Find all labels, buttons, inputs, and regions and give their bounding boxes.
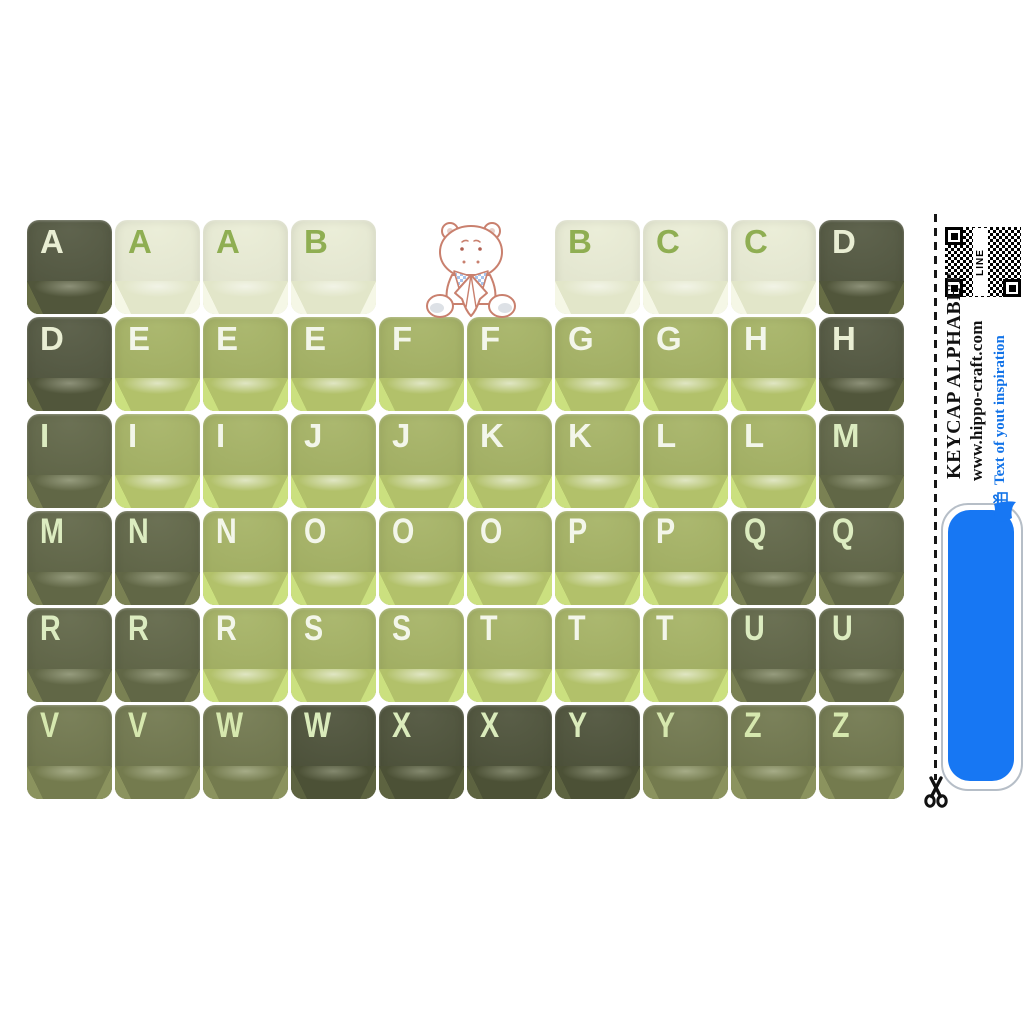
hippo-eye-right — [478, 247, 482, 251]
keycap-front-face — [731, 378, 816, 411]
keycap-letter: T — [568, 609, 586, 649]
qr-finder — [945, 227, 963, 245]
keycap-front-face — [203, 766, 288, 799]
keycap-i: I — [115, 414, 200, 508]
keycap-front-face — [819, 475, 904, 508]
keycap-letter: W — [216, 706, 243, 746]
keycap-front-face — [555, 766, 640, 799]
keycap-letter: G — [656, 320, 682, 358]
website-url: www.hippo-craft.com — [967, 320, 987, 481]
keycap-front-face — [819, 281, 904, 314]
keycap-letter: J — [304, 417, 322, 455]
speech-bubble — [948, 510, 1014, 781]
keycap-letter: W — [304, 706, 331, 746]
hippo-mascot — [424, 219, 518, 321]
keycap-letter: V — [40, 706, 59, 746]
sheet-title: KEYCAP ALPHABET — [943, 273, 966, 479]
keycap-x: X — [467, 705, 552, 799]
keycap-i: I — [203, 414, 288, 508]
keycap-p: P — [555, 511, 640, 605]
keycap-h: H — [731, 317, 816, 411]
keycap-x: X — [379, 705, 464, 799]
keycap-v: V — [115, 705, 200, 799]
keycap-letter: Y — [656, 706, 675, 746]
keycap-front-face — [115, 281, 200, 314]
keycap-front-face — [819, 378, 904, 411]
keycap-z: Z — [731, 705, 816, 799]
keycap-front-face — [291, 475, 376, 508]
keycap-front-face — [555, 669, 640, 702]
keycap-letter: S — [392, 609, 411, 649]
keycap-letter: A — [128, 223, 152, 261]
speech-bubble-tail — [992, 498, 1022, 526]
keycap-front-face — [115, 669, 200, 702]
keycap-q: Q — [819, 511, 904, 605]
keycap-front-face — [467, 572, 552, 605]
inspiration-note: Text of yout inspiration — [991, 335, 1009, 509]
keycap-d: D — [819, 220, 904, 314]
keycap-t: T — [555, 608, 640, 702]
keycap-letter: E — [128, 320, 150, 358]
keycap-front-face — [467, 475, 552, 508]
keycap-letter: I — [128, 417, 137, 455]
qr-finder — [1003, 279, 1021, 297]
keycap-e: E — [203, 317, 288, 411]
keycap-letter: U — [744, 609, 765, 649]
keycap-d: D — [27, 317, 112, 411]
keycap-front-face — [731, 281, 816, 314]
keycap-r: R — [203, 608, 288, 702]
keycap-letter: E — [304, 320, 326, 358]
keycap-front-face — [643, 378, 728, 411]
keycap-letter: B — [304, 223, 328, 261]
keycap-front-face — [291, 669, 376, 702]
keycap-front-face — [467, 378, 552, 411]
keycap-letter: T — [480, 609, 498, 649]
hippo-nostril-right — [477, 261, 480, 264]
keycap-front-face — [643, 766, 728, 799]
hippo-head — [440, 226, 502, 278]
keycap-q: Q — [731, 511, 816, 605]
keycap-front-face — [203, 378, 288, 411]
keycap-letter: A — [40, 223, 64, 261]
keycap-f: F — [379, 317, 464, 411]
keycap-y: Y — [555, 705, 640, 799]
keycap-v: V — [27, 705, 112, 799]
keycap-c: C — [643, 220, 728, 314]
keycap-j: J — [291, 414, 376, 508]
keycap-front-face — [731, 572, 816, 605]
keycap-front-face — [643, 572, 728, 605]
keycap-front-face — [379, 669, 464, 702]
keycap-letter: B — [568, 223, 592, 261]
keycap-p: P — [643, 511, 728, 605]
keycap-letter: P — [568, 512, 587, 552]
keycap-letter: I — [40, 417, 49, 455]
keycap-front-face — [467, 766, 552, 799]
keycap-front-face — [731, 766, 816, 799]
keycap-b: B — [555, 220, 640, 314]
keycap-t: T — [467, 608, 552, 702]
keycap-front-face — [379, 378, 464, 411]
keycap-front-face — [819, 572, 904, 605]
keycap-n: N — [115, 511, 200, 605]
keycap-letter: T — [656, 609, 674, 649]
keycap-front-face — [731, 669, 816, 702]
keycap-letter: Y — [568, 706, 587, 746]
keycap-e: E — [291, 317, 376, 411]
keycap-letter: H — [744, 320, 768, 358]
keycap-front-face — [731, 475, 816, 508]
keycap-a: A — [115, 220, 200, 314]
keycap-front-face — [467, 669, 552, 702]
keycap-a: A — [203, 220, 288, 314]
keycap-a: A — [27, 220, 112, 314]
keycap-front-face — [203, 572, 288, 605]
keycap-letter: M — [832, 417, 860, 455]
keycap-letter: Q — [744, 512, 766, 552]
keycap-s: S — [291, 608, 376, 702]
keycap-letter: U — [832, 609, 853, 649]
keycap-w: W — [203, 705, 288, 799]
keycap-h: H — [819, 317, 904, 411]
keycap-letter: Z — [744, 706, 762, 746]
keycap-letter: F — [480, 320, 500, 358]
keycap-letter: D — [832, 223, 856, 261]
keycap-letter: C — [744, 223, 768, 261]
keycap-front-face — [27, 572, 112, 605]
keycap-letter: J — [392, 417, 410, 455]
keycap-e: E — [115, 317, 200, 411]
keycap-letter: R — [128, 609, 149, 649]
keycap-w: W — [291, 705, 376, 799]
keycap-front-face — [27, 475, 112, 508]
keycap-b: B — [291, 220, 376, 314]
keycap-i: I — [27, 414, 112, 508]
keycap-g: G — [643, 317, 728, 411]
keycap-letter: P — [656, 512, 675, 552]
hippo-eye-left — [460, 247, 464, 251]
keycap-u: U — [731, 608, 816, 702]
keycap-j: J — [379, 414, 464, 508]
keycap-front-face — [291, 572, 376, 605]
keycap-front-face — [203, 669, 288, 702]
keycap-front-face — [27, 378, 112, 411]
keycap-front-face — [115, 475, 200, 508]
keycap-letter: O — [304, 512, 326, 552]
keycap-front-face — [819, 766, 904, 799]
keycap-front-face — [203, 281, 288, 314]
keycap-g: G — [555, 317, 640, 411]
keycap-product-sheet: AAABBCCDDEEEFFGGHHIIIJJKKLLMMNNOOOPPQQRR… — [0, 0, 1024, 1024]
keycap-front-face — [203, 475, 288, 508]
keycap-letter: N — [128, 512, 149, 552]
keycap-front-face — [291, 281, 376, 314]
keycap-l: L — [731, 414, 816, 508]
keycap-letter: Z — [832, 706, 850, 746]
keycap-letter: L — [744, 417, 764, 455]
keycap-letter: N — [216, 512, 237, 552]
keycap-o: O — [291, 511, 376, 605]
keycap-front-face — [643, 669, 728, 702]
keycap-letter: O — [480, 512, 502, 552]
keycap-letter: X — [392, 706, 411, 746]
keycap-front-face — [115, 766, 200, 799]
keycap-front-face — [115, 572, 200, 605]
keycap-letter: O — [392, 512, 414, 552]
qr-line-label: LINE — [975, 249, 986, 276]
keycap-letter: I — [216, 417, 225, 455]
keycap-letter: A — [216, 223, 240, 261]
keycap-front-face — [819, 669, 904, 702]
keycap-letter: X — [480, 706, 499, 746]
keycap-front-face — [643, 475, 728, 508]
keycap-letter: E — [216, 320, 238, 358]
keycap-letter: D — [40, 320, 64, 358]
keycap-front-face — [379, 766, 464, 799]
keycap-front-face — [555, 572, 640, 605]
keycap-f: F — [467, 317, 552, 411]
keycap-n: N — [203, 511, 288, 605]
keycap-front-face — [379, 475, 464, 508]
keycap-front-face — [555, 281, 640, 314]
keycap-letter: K — [568, 417, 592, 455]
keycap-o: O — [379, 511, 464, 605]
keycap-front-face — [27, 669, 112, 702]
keycap-letter: V — [128, 706, 147, 746]
keycap-front-face — [643, 281, 728, 314]
keycap-front-face — [27, 281, 112, 314]
keycap-o: O — [467, 511, 552, 605]
keycap-m: M — [819, 414, 904, 508]
keycap-r: R — [115, 608, 200, 702]
keycap-front-face — [115, 378, 200, 411]
keycap-t: T — [643, 608, 728, 702]
keycap-front-face — [555, 475, 640, 508]
keycap-u: U — [819, 608, 904, 702]
keycap-r: R — [27, 608, 112, 702]
keycap-front-face — [27, 766, 112, 799]
keycap-k: K — [555, 414, 640, 508]
keycap-letter: K — [480, 417, 504, 455]
keycap-front-face — [291, 378, 376, 411]
keycap-front-face — [555, 378, 640, 411]
keycap-front-face — [379, 572, 464, 605]
keycap-l: L — [643, 414, 728, 508]
keycap-letter: F — [392, 320, 412, 358]
keycap-c: C — [731, 220, 816, 314]
keycap-s: S — [379, 608, 464, 702]
keycap-letter: R — [40, 609, 61, 649]
keycap-letter: L — [656, 417, 676, 455]
keycap-letter: M — [40, 512, 64, 552]
keycap-y: Y — [643, 705, 728, 799]
keycap-z: Z — [819, 705, 904, 799]
qr-label-strip: LINE — [973, 228, 988, 296]
keycap-k: K — [467, 414, 552, 508]
keycap-letter: R — [216, 609, 237, 649]
keycap-letter: C — [656, 223, 680, 261]
keycap-letter: G — [568, 320, 594, 358]
keycap-m: M — [27, 511, 112, 605]
keycap-letter: H — [832, 320, 856, 358]
keycap-letter: Q — [832, 512, 854, 552]
hippo-nostril-left — [463, 261, 466, 264]
keycap-front-face — [291, 766, 376, 799]
keycap-letter: S — [304, 609, 323, 649]
cut-dashed-line — [934, 214, 937, 780]
inspiration-label: Text of yout inspiration — [992, 335, 1009, 485]
